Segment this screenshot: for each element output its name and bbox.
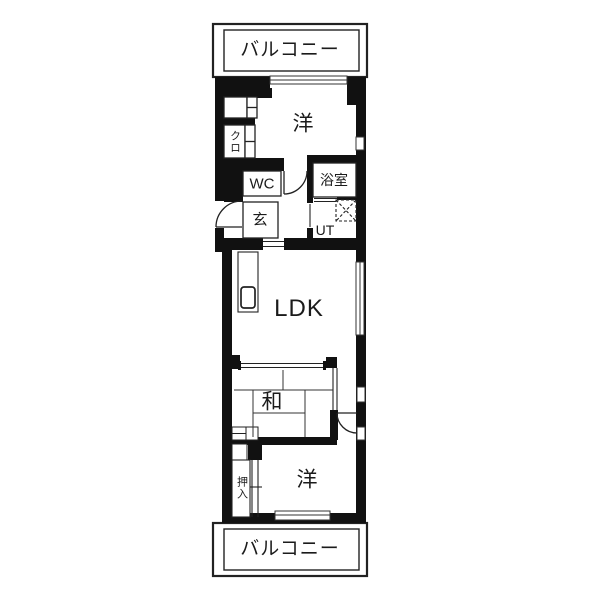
closet-top-box (224, 97, 257, 118)
door-arc-wc (284, 171, 307, 194)
door-arc-entrance (216, 201, 242, 227)
label-ldk: LDK (274, 297, 324, 321)
label-utility: UT (316, 223, 335, 237)
label-balcony-bottom: バルコニー (240, 540, 340, 559)
label-genkan: 玄 (252, 213, 267, 228)
label-wc: WC (250, 177, 275, 192)
label-bathroom: 浴室 (320, 173, 348, 187)
door-arc-bedroom-bottom (337, 413, 357, 433)
label-balcony-top: バルコニー (240, 41, 340, 60)
label-bedroom-top: 洋 (293, 114, 314, 135)
label-closet-kuro: クロ (229, 130, 240, 154)
label-oshiire: 押入 (236, 476, 247, 500)
floor-plan: バルコニー 洋 クロ WC 玄 浴室 UT LDK 和 押入 洋 バルコニー (0, 0, 600, 600)
kitchen-counter (238, 252, 258, 312)
washing-machine-pan (336, 200, 356, 221)
label-bedroom-bottom: 洋 (297, 470, 318, 491)
label-japanese-room: 和 (262, 392, 283, 413)
kitchen-sink (241, 287, 255, 308)
